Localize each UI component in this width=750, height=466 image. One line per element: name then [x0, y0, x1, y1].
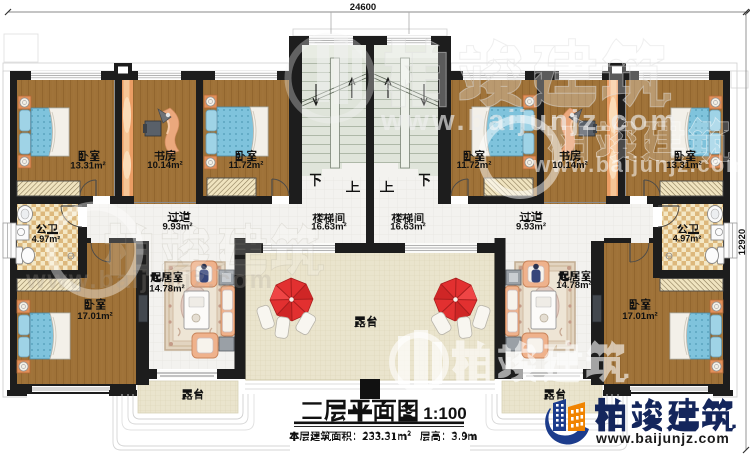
svg-text:4.97m²: 4.97m²: [32, 234, 61, 244]
svg-text:17.01m²: 17.01m²: [622, 311, 657, 322]
svg-text:14.78m²: 14.78m²: [556, 280, 591, 291]
svg-text:1:100: 1:100: [423, 404, 466, 423]
svg-text:11.72m²: 11.72m²: [229, 160, 264, 171]
svg-text:16.63m²: 16.63m²: [311, 222, 346, 233]
svg-text:4.97m²: 4.97m²: [673, 234, 702, 244]
svg-text:13.31m²: 13.31m²: [666, 160, 701, 171]
svg-text:10.14m²: 10.14m²: [552, 160, 587, 171]
svg-text:12920: 12920: [737, 229, 748, 255]
svg-text:9.93m²: 9.93m²: [162, 222, 192, 233]
svg-text:www.baijunjz.com: www.baijunjz.com: [595, 430, 730, 446]
svg-text:17.01m²: 17.01m²: [77, 311, 112, 322]
svg-text:9.93m²: 9.93m²: [516, 222, 546, 233]
svg-text:13.31m²: 13.31m²: [70, 161, 105, 172]
svg-text:10.14m²: 10.14m²: [147, 160, 182, 171]
svg-text:11.72m²: 11.72m²: [457, 160, 492, 171]
svg-text:16.63m²: 16.63m²: [390, 222, 425, 233]
svg-text:24600: 24600: [350, 2, 376, 13]
svg-text:14.78m²: 14.78m²: [149, 284, 184, 295]
